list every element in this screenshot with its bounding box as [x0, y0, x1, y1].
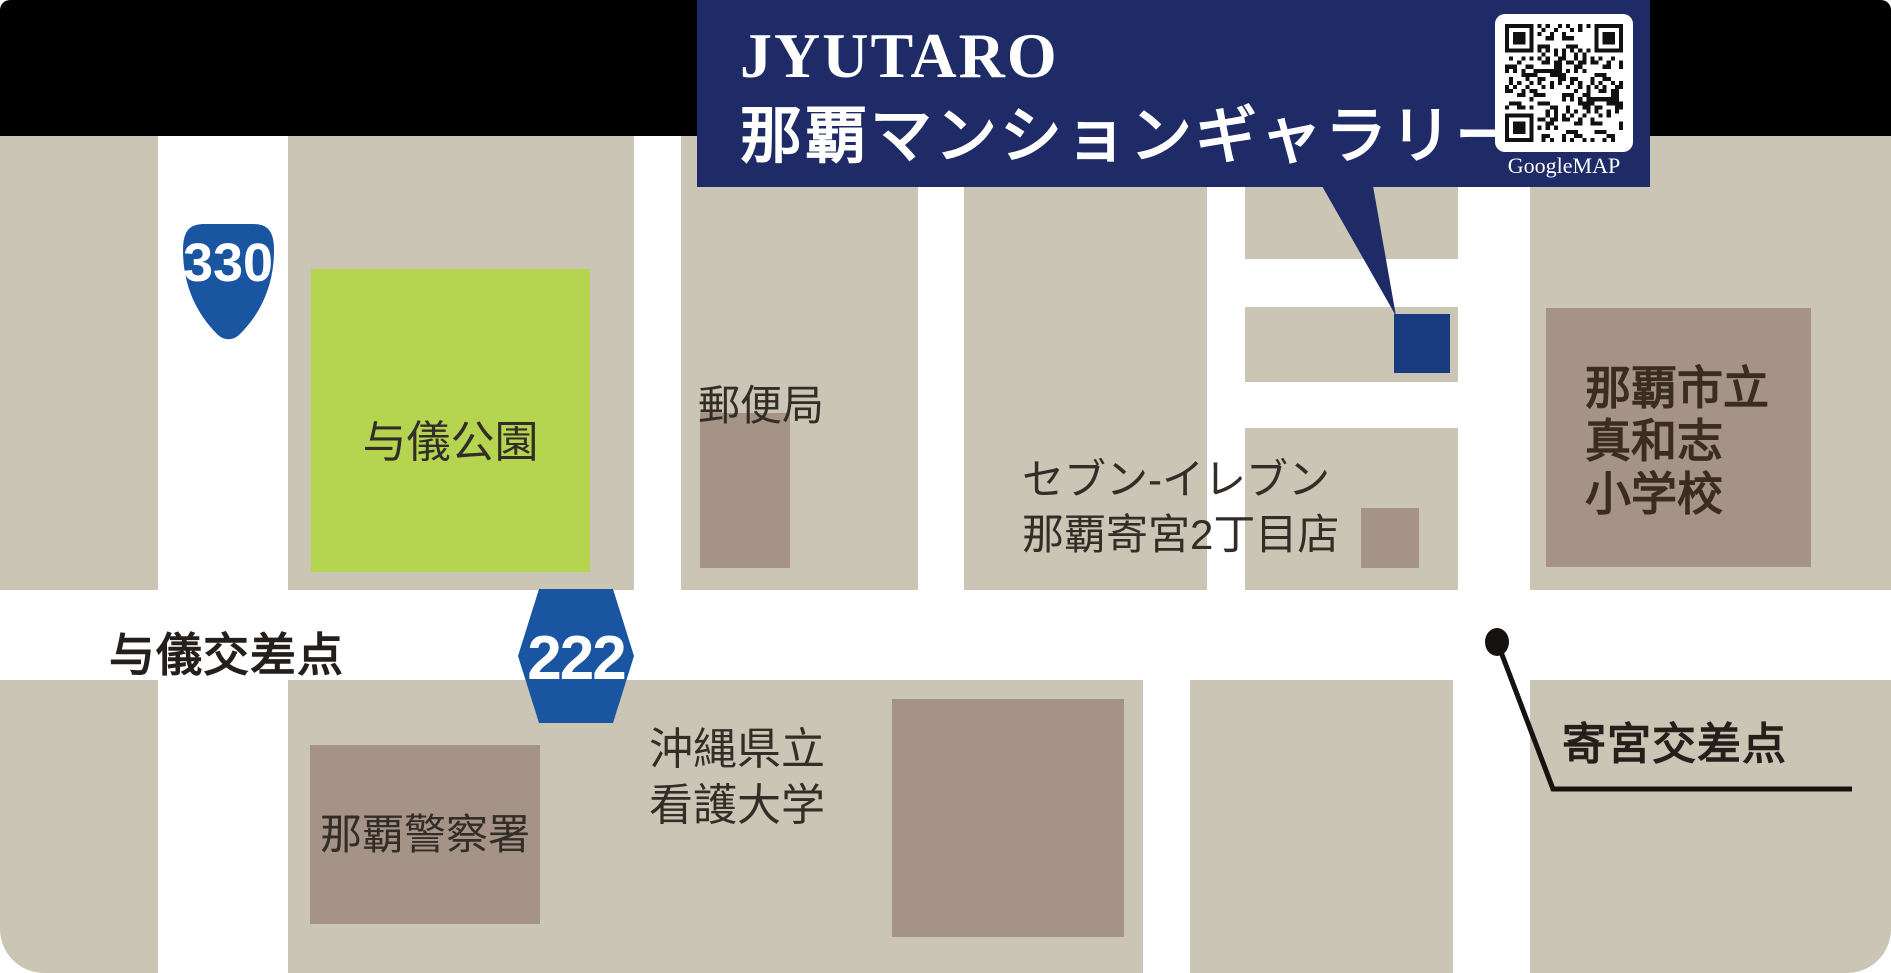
header-callout: JYUTARO 那覇マンションギャラリー GoogleMAP — [697, 0, 1650, 187]
post-office-label: 郵便局 — [698, 385, 824, 427]
yogi-park-label: 与儀公園 — [363, 421, 539, 465]
city-block — [0, 136, 158, 590]
school-label: 那覇市立真和志小学校 — [1585, 362, 1769, 521]
city-block — [0, 680, 158, 973]
college-building — [892, 699, 1124, 937]
yosemiya-dot — [1485, 628, 1509, 656]
qr-pattern — [1505, 24, 1623, 142]
gallery-location-marker — [1394, 314, 1450, 373]
college-label: 沖縄県立看護大学 — [649, 722, 825, 834]
police-building: 那覇警察署 — [310, 745, 540, 924]
city-block — [1190, 680, 1453, 973]
route-330-number: 330 — [183, 233, 273, 293]
yogi-intersection-label: 与儀交差点 — [109, 632, 344, 678]
post-office-building — [700, 413, 790, 568]
gallery-title-en: JYUTARO — [740, 24, 1059, 88]
route-222-shield: 222 — [518, 589, 634, 723]
police-label: 那覇警察署 — [320, 814, 530, 856]
yosemiya-intersection-label: 寄宮交差点 — [1562, 723, 1787, 767]
qr-code[interactable] — [1495, 14, 1633, 152]
access-map: 与儀公園 那覇警察署 郵便局 セブン-イレブン那覇寄宮2丁目店 沖縄県立看護大学… — [0, 0, 1891, 973]
route-222-number: 222 — [527, 624, 624, 693]
seven-eleven-building — [1361, 508, 1419, 568]
yogi-park-area: 与儀公園 — [311, 269, 590, 572]
seven-eleven-label: セブン-イレブン那覇寄宮2丁目店 — [1022, 452, 1339, 562]
gallery-title-ja: 那覇マンションギャラリー — [740, 106, 1520, 168]
route-330-shield: 330 — [168, 219, 289, 352]
qr-caption: GoogleMAP — [1495, 153, 1633, 179]
